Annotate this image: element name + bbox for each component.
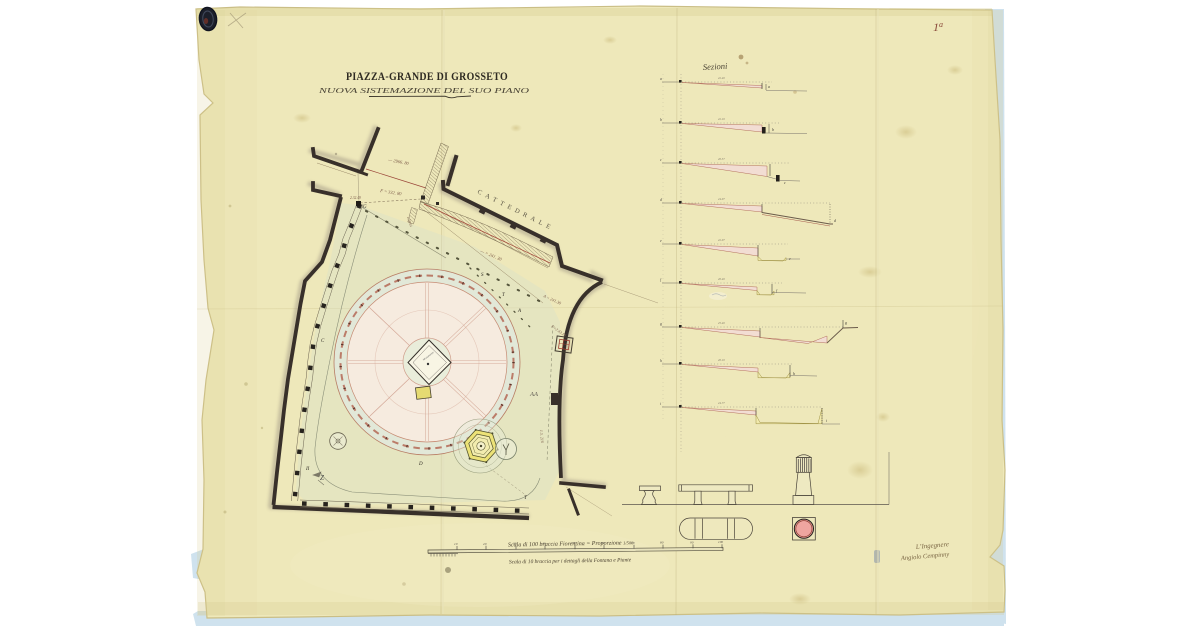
svg-text:25.40: 25.40 [718,321,725,325]
svg-text:70: 70 [631,541,635,545]
svg-text:PIAZZA-GRANDE DI GROSSETO: PIAZZA-GRANDE DI GROSSETO [346,69,508,83]
svg-text:NUOVA SISTEMAZIONE DEL SUO PIA: NUOVA SISTEMAZIONE DEL SUO PIANO [317,88,529,95]
svg-text:100: 100 [718,540,723,544]
svg-text:20.40: 20.40 [718,277,725,281]
svg-text:10: 10 [454,542,458,546]
svg-text:2.32.49: 2.32.49 [350,196,361,200]
svg-text:G: G [363,205,367,210]
svg-text:e: e [789,256,791,261]
svg-text:i: i [660,401,661,406]
svg-text:30: 30 [513,542,517,546]
svg-text:22.07: 22.07 [718,238,725,242]
svg-text:60: 60 [601,541,605,545]
svg-text:a: a [768,84,770,89]
svg-text:g: g [660,321,662,326]
svg-text:24.77: 24.77 [718,401,725,405]
svg-text:24.07: 24.07 [718,197,725,201]
svg-text:20.10: 20.10 [718,358,725,362]
svg-text:h: h [793,371,795,376]
svg-text:20: 20 [483,542,487,546]
svg-text:b: b [660,117,662,122]
svg-text:e: e [660,238,662,243]
svg-text:a: a [660,76,662,81]
svg-text:90: 90 [690,540,694,544]
svg-text:22.40: 22.40 [718,76,725,80]
svg-text:g: g [845,320,847,325]
svg-text:Sezioni: Sezioni [703,61,729,72]
svg-text:Z: Z [320,474,324,482]
svg-text:20.57: 20.57 [718,157,725,161]
svg-text:40: 40 [542,541,546,545]
svg-text:b: b [772,127,774,132]
svg-text:c: c [660,157,662,162]
svg-text:h: h [660,358,662,363]
svg-text:D: D [418,462,423,467]
svg-text:II: II [305,467,310,472]
svg-text:22.10: 22.10 [718,117,725,121]
svg-text:i: i [826,418,827,423]
svg-text:80: 80 [660,541,664,545]
svg-text:AA: AA [529,391,538,398]
svg-text:50: 50 [572,541,576,545]
